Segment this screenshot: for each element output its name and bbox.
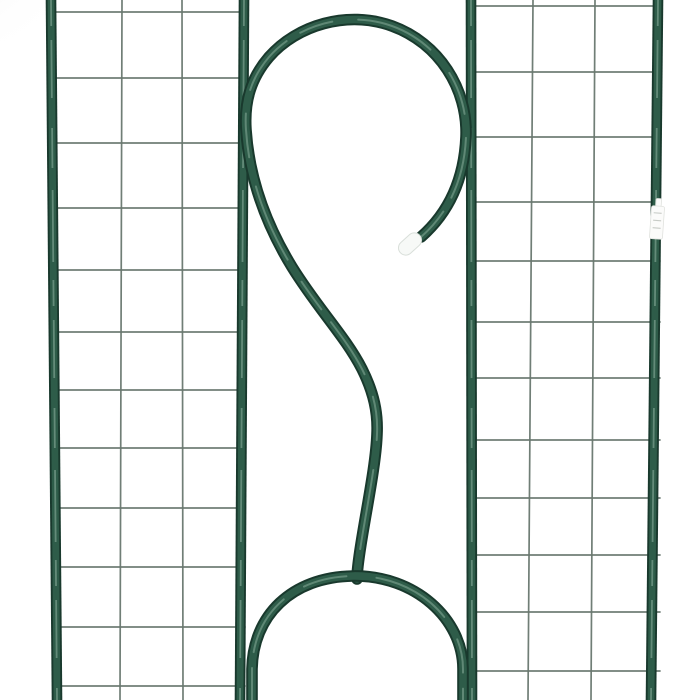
trellis-photo-canvas xyxy=(0,0,700,700)
tag-body xyxy=(649,206,664,240)
left-outer-tube xyxy=(51,0,57,700)
right-outer-tube xyxy=(651,0,658,700)
tag-print-mark xyxy=(654,213,662,214)
right-inner-tube xyxy=(471,0,472,700)
tag-attachment-loop xyxy=(656,198,662,206)
tag-print-mark xyxy=(653,220,661,221)
tag-print-mark xyxy=(653,228,661,229)
trellis-product-photo xyxy=(0,0,700,700)
vertical-grid-wire xyxy=(182,0,183,700)
